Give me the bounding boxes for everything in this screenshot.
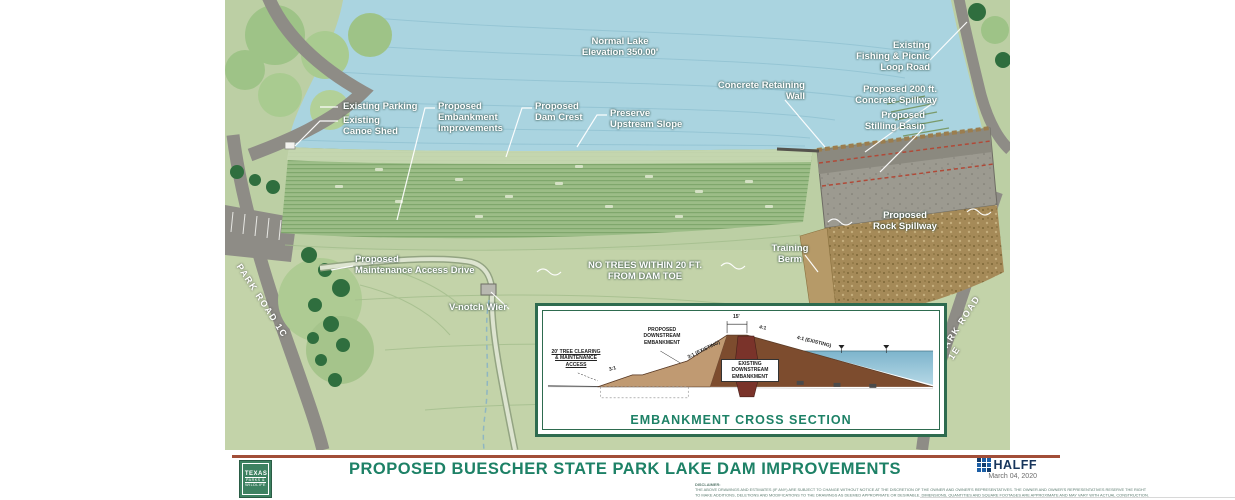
cross-section-drawing [543, 311, 939, 403]
tpwd-line1: TEXAS [245, 471, 266, 478]
crest-dimension [727, 321, 747, 333]
lake [286, 0, 982, 151]
sheet-title: PROPOSED BUESCHER STATE PARK LAKE DAM IM… [285, 460, 965, 479]
sheet-edge-line [920, 497, 1235, 498]
canoe-shed-structure [285, 142, 295, 149]
halff-wordmark: HALFF [994, 458, 1037, 472]
proposed-embankment-shape [598, 335, 727, 387]
plan-sheet: Normal Lake Elevation 350.00' Concrete R… [0, 0, 1235, 500]
disclaimer: DISCLAIMER: THE ABOVE DRAWINGS AND ESTIM… [695, 483, 1210, 498]
inset-frame: 20' TREE CLEARING & MAINTENANCE ACCESS P… [542, 310, 940, 430]
halff-logo-block: HALFF March 04, 2020 [947, 458, 1037, 480]
embankment-cross-section-inset: 20' TREE CLEARING & MAINTENANCE ACCESS P… [535, 303, 947, 437]
sheet-date: March 04, 2020 [947, 473, 1037, 480]
halff-grid-icon [977, 458, 991, 472]
foundation-outline [601, 387, 689, 398]
title-block: TEXAS PARKS & WILDLIFE PROPOSED BUESCHER… [225, 450, 1235, 500]
site-plan-map: Normal Lake Elevation 350.00' Concrete R… [225, 0, 1010, 450]
tpwd-logo: TEXAS PARKS & WILDLIFE [239, 460, 272, 498]
retaining-wall [777, 149, 819, 151]
footer-rule [232, 455, 1060, 458]
v-notch-weir-structure [481, 284, 496, 295]
disclaimer-line-1: THE ABOVE DRAWINGS AND ESTIMATES (IF ANY… [695, 488, 1210, 493]
tpwd-line3: WILDLIFE [245, 482, 266, 487]
cross-section-caption: EMBANKMENT CROSS SECTION [543, 413, 939, 427]
